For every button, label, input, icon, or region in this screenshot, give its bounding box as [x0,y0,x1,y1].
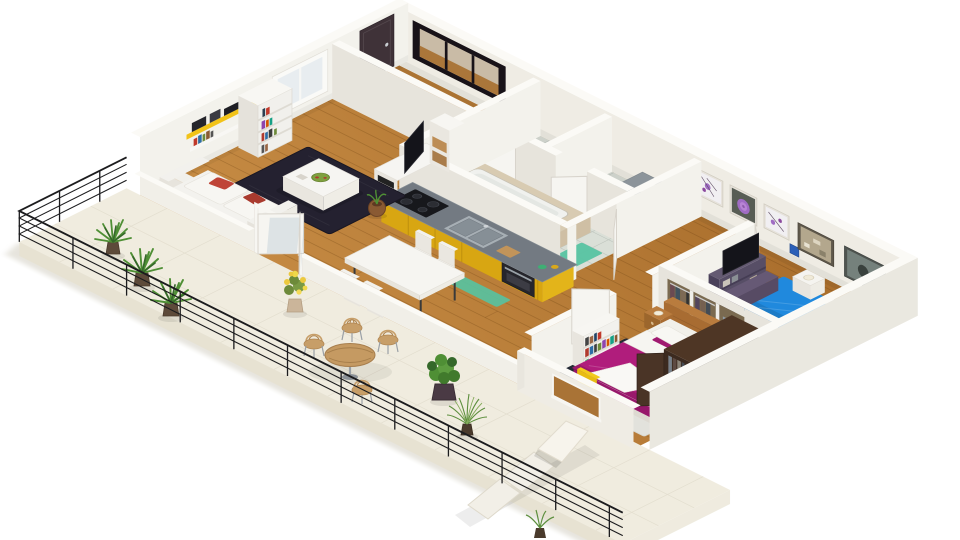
door-frame-post [254,202,258,254]
apartment-render-svg: 3D isometric floor plan render of a two-… [0,0,960,540]
floor-plan-render: 3D isometric floor plan render of a two-… [0,0,960,540]
